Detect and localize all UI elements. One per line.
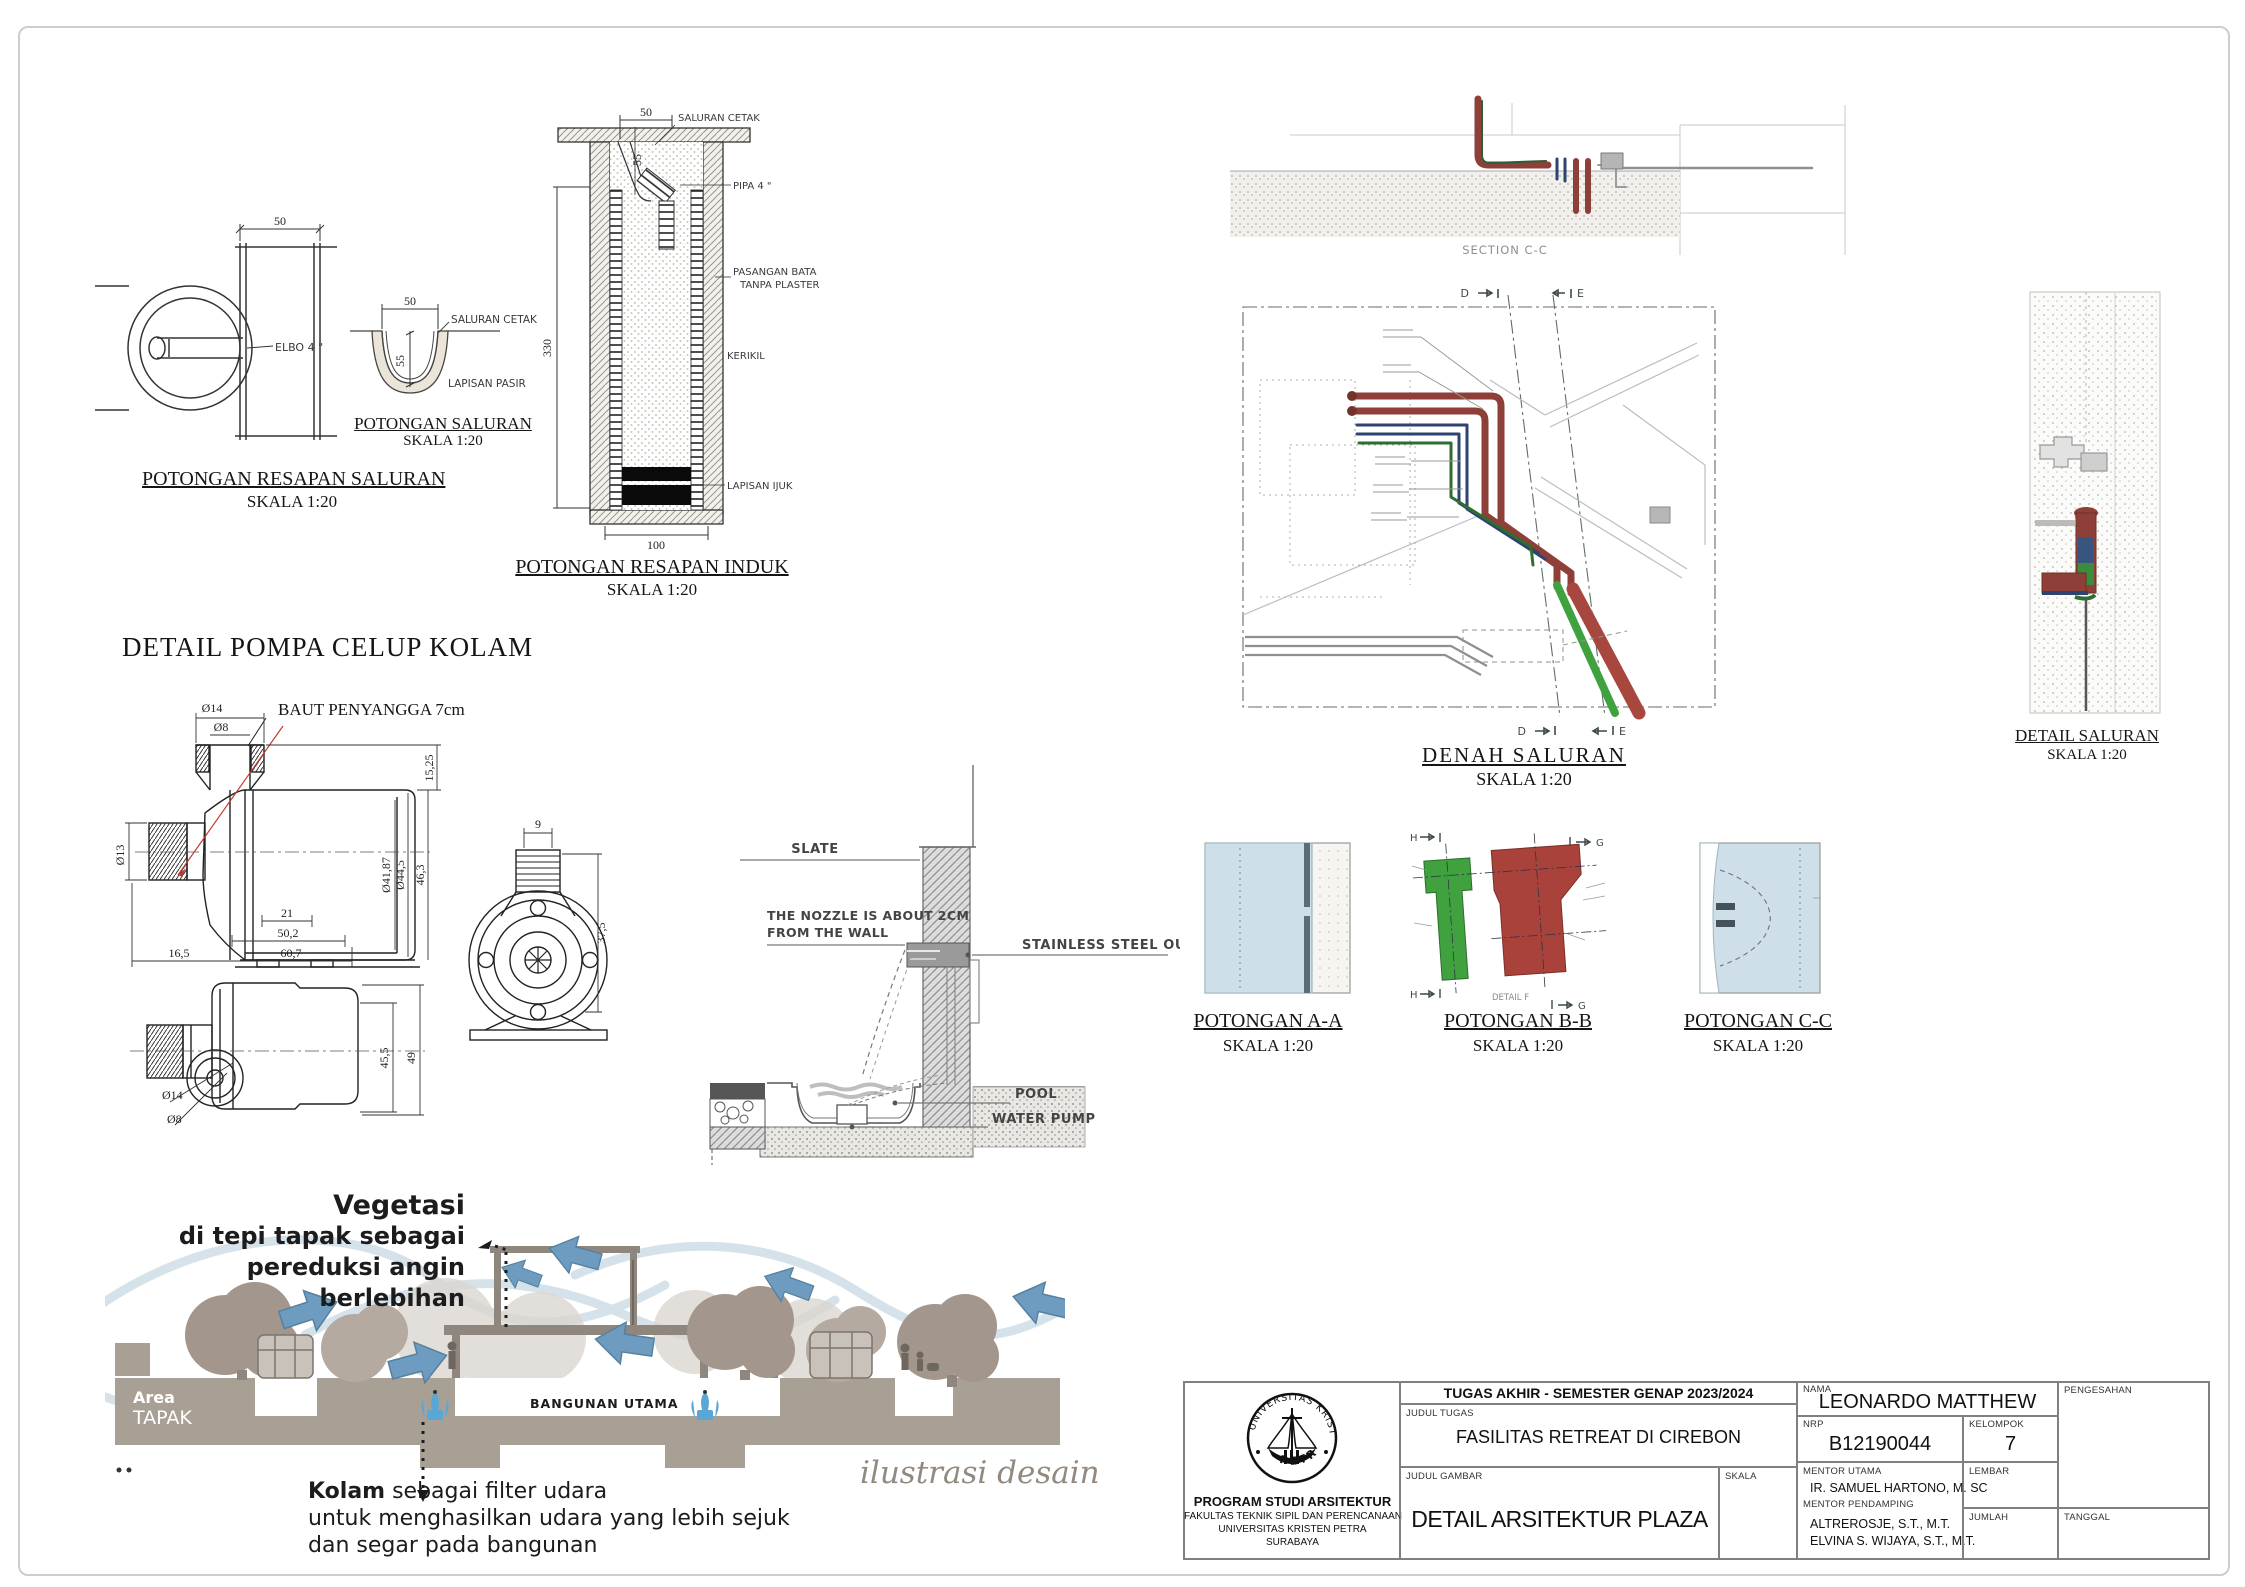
detail-saluran-scale: SKALA 1:20 xyxy=(1987,747,2187,764)
kelompok-value: 7 xyxy=(1964,1433,2057,1456)
potongan-aa-drawing xyxy=(1200,838,1355,998)
outlet-label: STAINLESS STEEL OUTLET xyxy=(1022,938,1180,953)
potongan-bb-drawing: H H G G DETAIL F xyxy=(1400,828,1615,1013)
title-block: UNIVERSITAS KRISTEN PETRA PROGRAM STUDI … xyxy=(1183,1381,2210,1560)
mentor-pendamping-2: ELVINA S. WIJAYA, S.T., M.T. xyxy=(1810,1534,1975,1548)
mentor-utama-label: MENTOR UTAMA xyxy=(1803,1466,1882,1477)
judul-tugas-cell: JUDUL TUGAS FASILITAS RETREAT DI CIREBON xyxy=(1400,1404,1797,1467)
lapisan-pasir-label: LAPISAN PASIR xyxy=(448,378,526,390)
skala-cell: SKALA xyxy=(1719,1467,1797,1560)
potongan-bb-title: POTONGAN B-B xyxy=(1418,1010,1618,1033)
dim-100: 100 xyxy=(647,538,665,552)
dim-d14: Ø14 xyxy=(202,701,223,715)
potongan-cc-drawing xyxy=(1695,838,1825,998)
pengesahan-label: PENGESAHAN xyxy=(2064,1385,2132,1396)
detail-f-caption: DETAIL F xyxy=(1492,993,1529,1003)
nrp-label: NRP xyxy=(1803,1419,1824,1430)
dim-d41-87: Ø41,87 xyxy=(379,857,393,893)
bangunan-utama-label: BANGUNAN UTAMA xyxy=(530,1396,679,1411)
tanggal-cell: TANGGAL xyxy=(2058,1508,2210,1560)
pompa-heading: DETAIL POMPA CELUP KOLAM xyxy=(122,632,533,663)
saluran-title: POTONGAN SALURAN xyxy=(343,414,543,434)
judul-tugas-value: FASILITAS RETREAT DI CIREBON xyxy=(1401,1427,1796,1448)
mentor-pendamping-label: MENTOR PENDAMPING xyxy=(1803,1499,1914,1510)
dim-55: 55 xyxy=(393,355,407,367)
lembar-cell: LEMBAR xyxy=(1963,1462,2058,1508)
nama-cell: NAMA LEONARDO MATTHEW xyxy=(1797,1381,2058,1416)
denah-title: DENAH SALURAN xyxy=(1374,743,1674,768)
saluran-scale: SKALA 1:20 xyxy=(343,433,543,450)
dim-50: 50 xyxy=(640,105,652,119)
judul-gambar-label: JUDUL GAMBAR xyxy=(1406,1471,1482,1482)
dim-60-7: 60,7 xyxy=(281,946,302,960)
nozzle-label-1: THE NOZZLE IS ABOUT 2CM xyxy=(767,908,969,923)
pool-label: POOL xyxy=(1015,1087,1057,1102)
resapan-saluran-scale: SKALA 1:20 xyxy=(142,492,442,512)
tanggal-label: TANGGAL xyxy=(2064,1512,2110,1523)
slate-label: SLATE xyxy=(791,842,838,857)
nrp-cell: NRP B12190044 xyxy=(1797,1416,1963,1462)
dim-330: 330 xyxy=(540,339,554,357)
resapan-saluran-title: POTONGAN RESAPAN SALURAN xyxy=(142,468,442,491)
dim-16-5: 16,5 xyxy=(169,946,190,960)
potongan-aa-scale: SKALA 1:20 xyxy=(1168,1036,1368,1056)
judul-gambar-cell: JUDUL GAMBAR DETAIL ARSITEKTUR PLAZA xyxy=(1400,1467,1719,1560)
pengesahan-cell: PENGESAHAN xyxy=(2058,1381,2210,1508)
institution-line1: PROGRAM STUDI ARSITEKTUR xyxy=(1184,1494,1401,1509)
jumlah-cell: JUMLAH xyxy=(1963,1508,2058,1560)
detail-saluran-title: DETAIL SALURAN xyxy=(1987,726,2187,746)
marker-h-top: H xyxy=(1410,833,1418,844)
institution-line2: FAKULTAS TEKNIK SIPIL DAN PERENCANAAN xyxy=(1184,1511,1401,1522)
kerikil-label: KERIKIL xyxy=(727,351,765,362)
dim-55: 55 xyxy=(630,154,644,166)
institution-line3: UNIVERSITAS KRISTEN PETRA xyxy=(1184,1524,1401,1535)
dim-49: 49 xyxy=(404,1052,418,1064)
marker-h-bottom: H xyxy=(1410,990,1418,1001)
mentor-cell: MENTOR UTAMA IR. SAMUEL HARTONO, M. SC M… xyxy=(1797,1462,1963,1560)
slate-fountain-detail: SLATE THE NOZZLE IS ABOUT 2CM FROM THE W… xyxy=(700,765,1180,1170)
jumlah-label: JUMLAH xyxy=(1969,1512,2008,1523)
header-cell: TUGAS AKHIR - SEMESTER GENAP 2023/2024 xyxy=(1400,1381,1797,1404)
nama-value: LEONARDO MATTHEW xyxy=(1798,1391,2057,1414)
area-tapak-label: Area TAPAK xyxy=(133,1388,192,1428)
nozzle-label-2: FROM THE WALL xyxy=(767,925,889,940)
marker-d-bottom: D xyxy=(1518,725,1526,738)
saluran-cetak-label: SALURAN CETAK xyxy=(678,113,760,124)
judul-gambar-value: DETAIL ARSITEKTUR PLAZA xyxy=(1401,1506,1718,1533)
potongan-bb-scale: SKALA 1:20 xyxy=(1418,1036,1618,1056)
resapan-saluran-drawing: 50 ELBO 4 " xyxy=(95,215,365,465)
drawing-sheet: 50 ELBO 4 " POTONGAN RESAPAN SALURAN SKA… xyxy=(0,0,2245,1587)
skala-label: SKALA xyxy=(1725,1471,1757,1482)
pipa-label: PIPA 4 " xyxy=(733,181,772,192)
resapan-induk-drawing: 50 55 330 100 SALURAN CETAK PIPA 4 " PAS… xyxy=(535,105,875,555)
dim-45-5: 45,5 xyxy=(377,1048,391,1069)
header-text: TUGAS AKHIR - SEMESTER GENAP 2023/2024 xyxy=(1401,1385,1796,1401)
dim-21: 21 xyxy=(281,906,293,920)
dim-d44-5: Ø44,5 xyxy=(393,860,407,890)
pompa-side-view: Ø14 Ø8 Ø13 15,25 Ø41,87 Ø44,5 46,3 21 50… xyxy=(115,695,460,980)
bata-label-1: PASANGAN BATA xyxy=(733,267,817,278)
dim-d8: Ø8 xyxy=(214,720,229,734)
dim-50: 50 xyxy=(404,295,416,308)
building-outlines xyxy=(1243,343,1705,615)
elbow-label: ELBO 4 " xyxy=(275,341,323,354)
dim-15-25: 15,25 xyxy=(422,755,436,782)
mentor-utama-value: IR. SAMUEL HARTONO, M. SC xyxy=(1810,1481,1988,1495)
lembar-label: LEMBAR xyxy=(1969,1466,2009,1477)
ilustrasi-desain-caption: ilustrasi desain xyxy=(860,1455,1100,1491)
pompa-bottom-view: Ø14 Ø8 45,5 49 xyxy=(115,975,445,1145)
kelompok-cell: KELOMPOK 7 xyxy=(1963,1416,2058,1462)
vegetasi-note: Vegetasi di tepi tapak sebagai pereduksi… xyxy=(165,1190,465,1314)
dim-d14: Ø14 xyxy=(162,1088,183,1102)
dim-50-2: 50,2 xyxy=(278,926,299,940)
university-logo: UNIVERSITAS KRISTEN PETRA xyxy=(1244,1390,1340,1486)
bata-label-2: TANPA PLASTER xyxy=(739,280,820,291)
potongan-cc-scale: SKALA 1:20 xyxy=(1658,1036,1858,1056)
section-cc-caption: SECTION C-C xyxy=(1425,243,1585,257)
saluran-cetak-label: SALURAN CETAK xyxy=(451,314,538,326)
marker-d-top: D xyxy=(1461,287,1469,300)
resapan-induk-scale: SKALA 1:20 xyxy=(502,580,802,600)
dim-9: 9 xyxy=(535,817,541,831)
kolam-note: Kolam sebagai filter udara untuk menghas… xyxy=(308,1478,948,1559)
denah-saluran-drawing: D E D E xyxy=(1235,285,1735,745)
logo-cell: UNIVERSITAS KRISTEN PETRA PROGRAM STUDI … xyxy=(1183,1381,1400,1560)
pompa-front-view: 9 37,5 xyxy=(455,740,640,1055)
ijuk-label: LAPISAN IJUK xyxy=(727,481,793,492)
dim-46-3: 46,3 xyxy=(413,865,427,886)
marker-g-top: G xyxy=(1596,838,1604,849)
dim-d13: Ø13 xyxy=(115,845,127,866)
potongan-cc-title: POTONGAN C-C xyxy=(1658,1010,1858,1033)
judul-tugas-label: JUDUL TUGAS xyxy=(1406,1408,1474,1419)
nrp-value: B12190044 xyxy=(1798,1433,1962,1456)
water-pump-label: WATER PUMP xyxy=(992,1112,1096,1127)
dim-37-5: 37,5 xyxy=(594,923,608,944)
mentor-pendamping-1: ALTREROSJE, S.T., M.T. xyxy=(1810,1517,1950,1531)
marker-e-top: E xyxy=(1577,287,1584,300)
denah-scale: SKALA 1:20 xyxy=(1374,769,1674,790)
institution-line4: SURABAYA xyxy=(1184,1537,1401,1548)
detail-saluran-drawing xyxy=(2015,285,2175,725)
potongan-aa-title: POTONGAN A-A xyxy=(1168,1010,1368,1033)
kelompok-label: KELOMPOK xyxy=(1969,1419,2024,1430)
marker-e-bottom: E xyxy=(1619,725,1626,738)
dim-d8: Ø8 xyxy=(167,1112,182,1126)
dim-50: 50 xyxy=(274,215,286,228)
resapan-induk-title: POTONGAN RESAPAN INDUK xyxy=(502,556,802,579)
